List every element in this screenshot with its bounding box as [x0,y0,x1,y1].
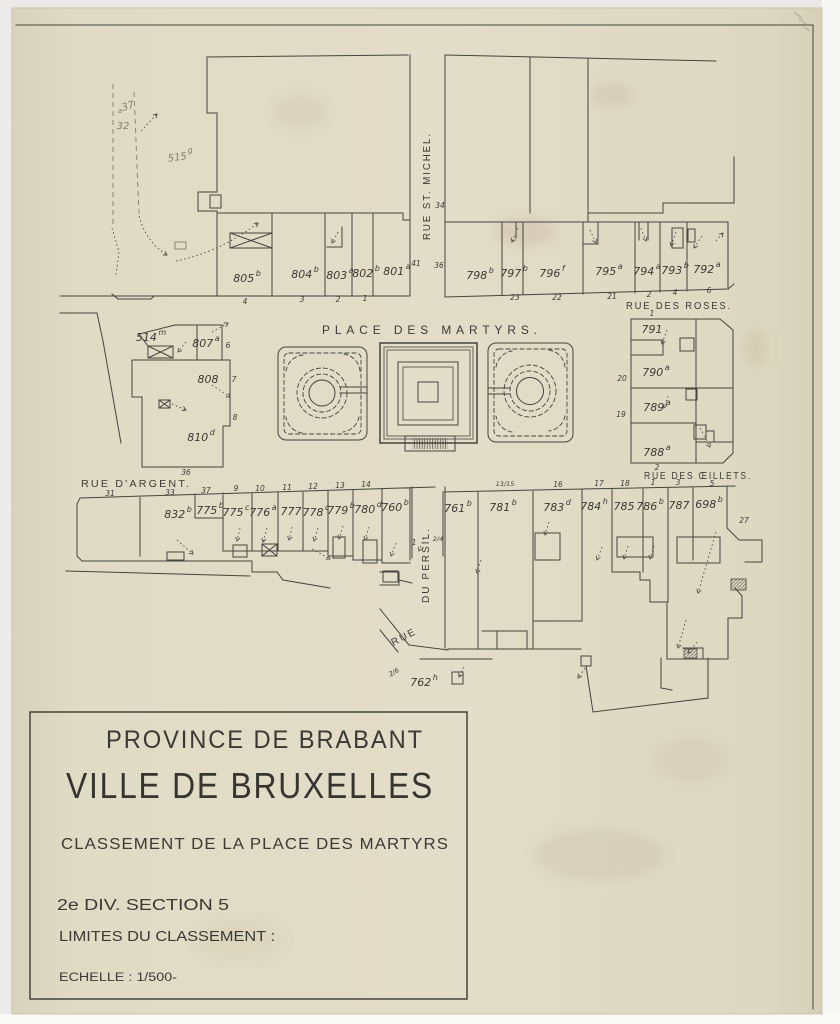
house-number: 4 [673,288,678,297]
house-number: 12 [308,482,318,491]
house-number: 14 [361,480,371,489]
house-number: 3 [300,295,305,304]
paper-sheet [0,0,840,1024]
street-label-st-michel: RUE ST. MICHEL. [422,132,433,240]
house-number: 9 [234,484,239,493]
hatched-stair-box-2 [684,649,697,658]
house-number: 7 [232,375,237,384]
street-label-persil: DU PERSIL. [421,527,432,603]
hatched-stair-box [731,579,746,590]
parcel-label-785: 785 [614,500,635,513]
house-number: 21 [607,292,617,301]
house-number: 31 [105,489,115,498]
title-scale: ECHELLE : 1/500- [59,972,177,984]
title-limits: LIMITES DU CLASSEMENT : [59,929,275,945]
parcel-label-787: 787 [669,499,690,512]
house-number: 27 [739,516,749,525]
house-number: 13/15 [496,480,515,488]
house-number: 36 [434,261,444,270]
house-number: 10 [255,484,265,493]
street-label-roses: RUE DES ROSES. [626,301,732,312]
house-number: 16 [553,480,563,489]
house-number: 4 [243,297,248,306]
title-city: VILLE DE BRUXELLES [66,765,434,806]
scan-background-right [822,0,840,1024]
house-number: 2/4 [433,535,443,543]
house-number: 36 [181,468,191,477]
pencil-label-37-sup: a [118,107,122,115]
house-number: 1 [363,294,368,303]
monument-steps-hatch [412,438,448,449]
house-number: 8 [233,413,238,422]
house-number: 6 [707,286,712,295]
scanned-map-page: 805b 804b 803a 802b 801a 798b 797b 796f … [0,0,840,1024]
house-number: 2 [647,290,652,299]
title-province: PROVINCE DE BRABANT [106,726,424,754]
house-number: 13 [335,481,345,490]
paper [12,8,822,1014]
house-number: 41 [411,259,421,268]
parcel-label-777: 777 [281,505,302,518]
house-number: 17 [594,479,604,488]
pencil-label-32: 32 [117,121,130,132]
place-des-martyrs-label: PLACE DES MARTYRS. [322,323,542,337]
house-number: 34 [435,201,445,210]
house-number: 37 [201,486,211,495]
title-division: 2e DIV. SECTION 5 [57,897,229,914]
street-label-argent: RUE D'ARGENT. [81,479,191,490]
map-canvas: 805b 804b 803a 802b 801a 798b 797b 796f … [0,0,840,1024]
house-number: 6 [226,341,231,350]
house-number: 2 [336,295,341,304]
house-number: 11 [282,483,292,492]
house-number: 1 [412,538,417,547]
scan-background-bottom [0,1014,840,1024]
house-number: 20 [617,374,627,383]
house-number: 22 [552,293,562,302]
house-number: 19 [616,410,626,419]
title-subject: CLASSEMENT DE LA PLACE DES MARTYRS [61,836,449,853]
street-label-oeillets: RUE DES ŒILLETS. [644,471,752,482]
parcel-label-808: 808 [198,373,219,386]
house-number: 23 [510,293,520,302]
house-number: 18 [620,479,630,488]
parcel-label-791: 791 [642,323,663,336]
